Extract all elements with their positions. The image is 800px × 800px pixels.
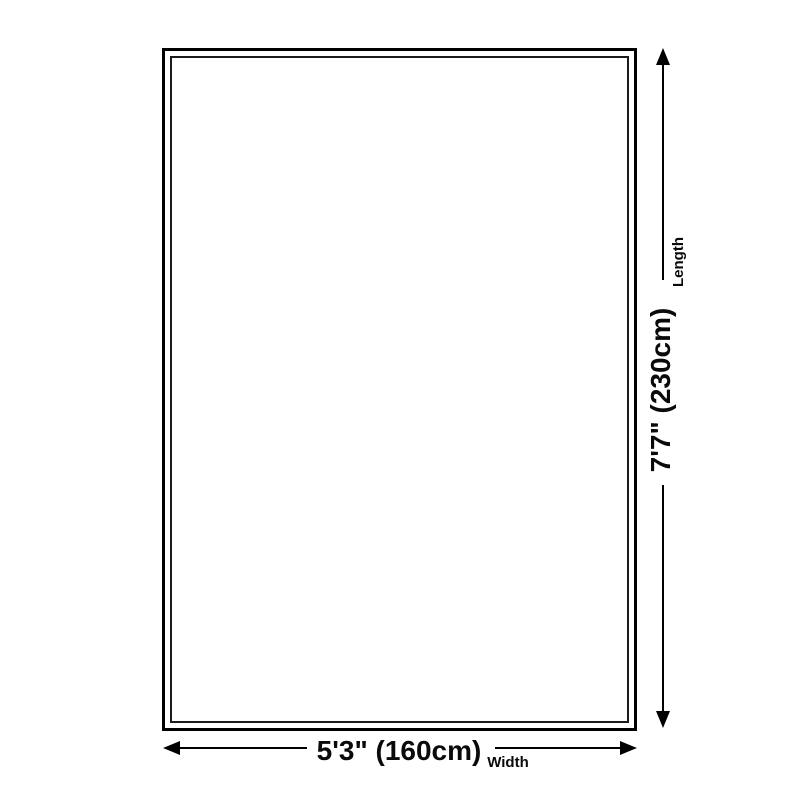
length-value-label: 7'7" (230cm) [643,305,679,475]
width-axis-label: Width [478,753,538,773]
width-arrow-right-line [495,747,622,749]
rug-outline-rectangle [162,48,637,731]
width-arrow-left-line [178,747,307,749]
length-axis-label: Length [669,227,689,297]
arrowhead-right-icon [620,741,637,755]
rug-inner-border [170,56,629,723]
length-arrow-upper-line [662,60,664,280]
size-diagram-canvas: Length 7'7" (230cm) 5'3" (160cm) Width [0,0,800,800]
arrowhead-down-icon [656,711,670,728]
width-value-label: 5'3" (160cm) [314,733,484,769]
length-arrow-lower-line [662,485,664,713]
